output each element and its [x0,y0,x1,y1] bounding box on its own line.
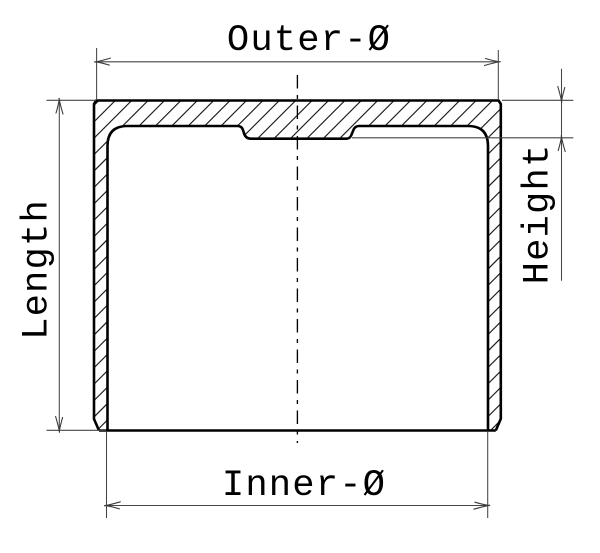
svg-text:Outer-Ø: Outer-Ø [227,20,391,62]
svg-text:Inner-Ø: Inner-Ø [222,465,386,507]
svg-text:Length: Length [17,199,59,340]
svg-text:Height: Height [518,144,560,285]
